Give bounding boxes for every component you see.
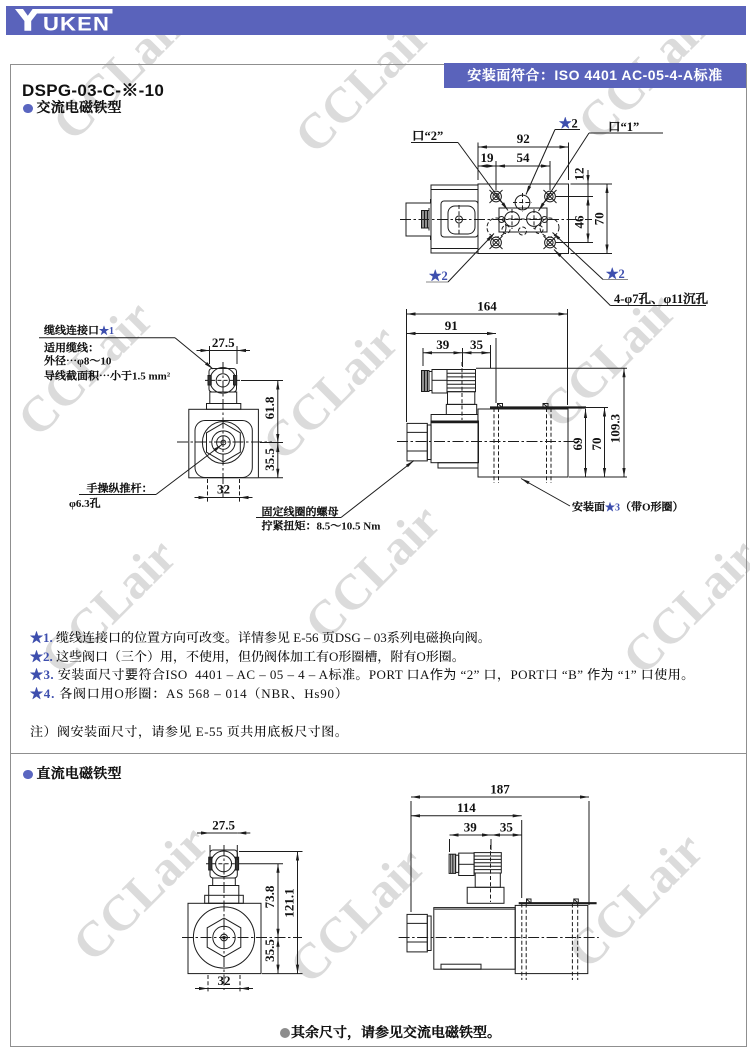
svg-text:32: 32 bbox=[218, 973, 231, 988]
svg-text:19: 19 bbox=[481, 150, 495, 165]
svg-text:164: 164 bbox=[477, 299, 497, 314]
svg-text:121.1: 121.1 bbox=[281, 888, 296, 917]
svg-text:口“1”: 口“1” bbox=[608, 117, 639, 135]
svg-text:187: 187 bbox=[490, 782, 510, 797]
svg-text:109.3: 109.3 bbox=[607, 413, 622, 443]
svg-text:54: 54 bbox=[517, 150, 531, 165]
svg-text:61.8: 61.8 bbox=[262, 396, 277, 419]
svg-text:★2: ★2 bbox=[559, 114, 578, 132]
svg-text:73.8: 73.8 bbox=[262, 885, 277, 908]
svg-text:27.5: 27.5 bbox=[212, 818, 235, 833]
svg-text:12: 12 bbox=[571, 168, 586, 181]
svg-text:35.5: 35.5 bbox=[262, 448, 277, 471]
svg-text:70: 70 bbox=[591, 212, 606, 225]
svg-text:35.5: 35.5 bbox=[262, 939, 277, 962]
svg-text:35: 35 bbox=[470, 337, 484, 352]
svg-text:114: 114 bbox=[457, 800, 476, 815]
svg-text:70: 70 bbox=[589, 438, 604, 451]
svg-text:39: 39 bbox=[436, 337, 450, 352]
svg-text:★2: ★2 bbox=[429, 266, 448, 284]
svg-text:导线截面积…小于1.5 mm²: 导线截面积…小于1.5 mm² bbox=[44, 368, 171, 384]
svg-text:69: 69 bbox=[570, 437, 585, 451]
svg-text:46: 46 bbox=[571, 215, 586, 229]
svg-text:安装面★3（带O形圈）: 安装面★3（带O形圈） bbox=[572, 499, 684, 515]
svg-text:35: 35 bbox=[500, 820, 514, 835]
svg-text:39: 39 bbox=[464, 820, 478, 835]
svg-text:外径…φ8～10: 外径…φ8～10 bbox=[44, 353, 112, 369]
svg-text:92: 92 bbox=[517, 131, 530, 146]
svg-text:φ6.3孔: φ6.3孔 bbox=[69, 495, 101, 511]
svg-text:32: 32 bbox=[217, 482, 230, 497]
svg-text:缆线连接口★1: 缆线连接口★1 bbox=[43, 322, 114, 338]
svg-text:91: 91 bbox=[445, 318, 458, 333]
svg-text:手操纵推杆：: 手操纵推杆： bbox=[87, 480, 153, 496]
svg-text:27.5: 27.5 bbox=[212, 335, 235, 350]
svg-text:4-φ7孔、φ11沉孔: 4-φ7孔、φ11沉孔 bbox=[614, 289, 709, 307]
svg-text:口“2”: 口“2” bbox=[412, 126, 443, 144]
svg-text:拧紧扭矩：8.5～10.5 Nm: 拧紧扭矩：8.5～10.5 Nm bbox=[262, 518, 381, 534]
